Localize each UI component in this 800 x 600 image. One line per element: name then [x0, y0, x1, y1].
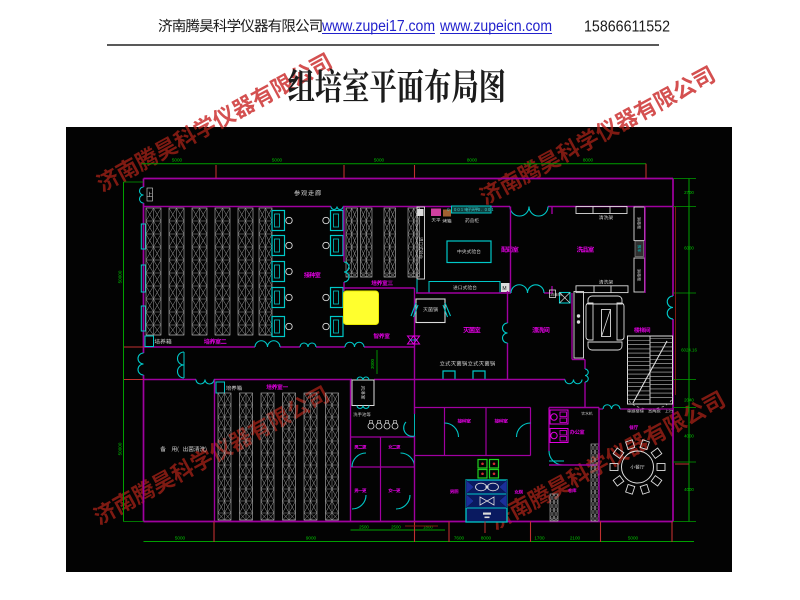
svg-text:3000: 3000 [370, 358, 375, 369]
svg-text:8000: 8000 [467, 158, 478, 163]
svg-text:1800: 1800 [423, 525, 433, 530]
svg-text:6024.16: 6024.16 [681, 348, 697, 353]
svg-text:5000: 5000 [628, 536, 639, 541]
svg-text:6000: 6000 [684, 246, 694, 251]
svg-text:15866611552: 15866611552 [584, 19, 670, 36]
svg-text:5000: 5000 [374, 158, 385, 163]
svg-text:www.zupeicn.com: www.zupeicn.com [439, 18, 552, 35]
svg-text:4000: 4000 [684, 434, 694, 439]
svg-text:www.zupei17.com: www.zupei17.com [321, 18, 435, 35]
svg-text:2700: 2700 [684, 190, 694, 195]
svg-text:2040: 2040 [684, 398, 694, 403]
svg-text:9000: 9000 [306, 536, 317, 541]
svg-text:2100: 2100 [570, 536, 581, 541]
svg-text:5000: 5000 [175, 536, 186, 541]
svg-text:4000: 4000 [684, 487, 694, 492]
svg-text:8000: 8000 [481, 536, 492, 541]
svg-text:7600: 7600 [454, 536, 465, 541]
svg-text:2500: 2500 [391, 525, 401, 530]
svg-text:5000: 5000 [272, 158, 283, 163]
svg-text:2500: 2500 [359, 525, 369, 530]
svg-text:50000: 50000 [118, 442, 123, 455]
svg-text:5000: 5000 [172, 158, 183, 163]
svg-text:50000: 50000 [118, 270, 123, 283]
svg-text:8000: 8000 [583, 158, 594, 163]
svg-text:1700: 1700 [534, 536, 545, 541]
